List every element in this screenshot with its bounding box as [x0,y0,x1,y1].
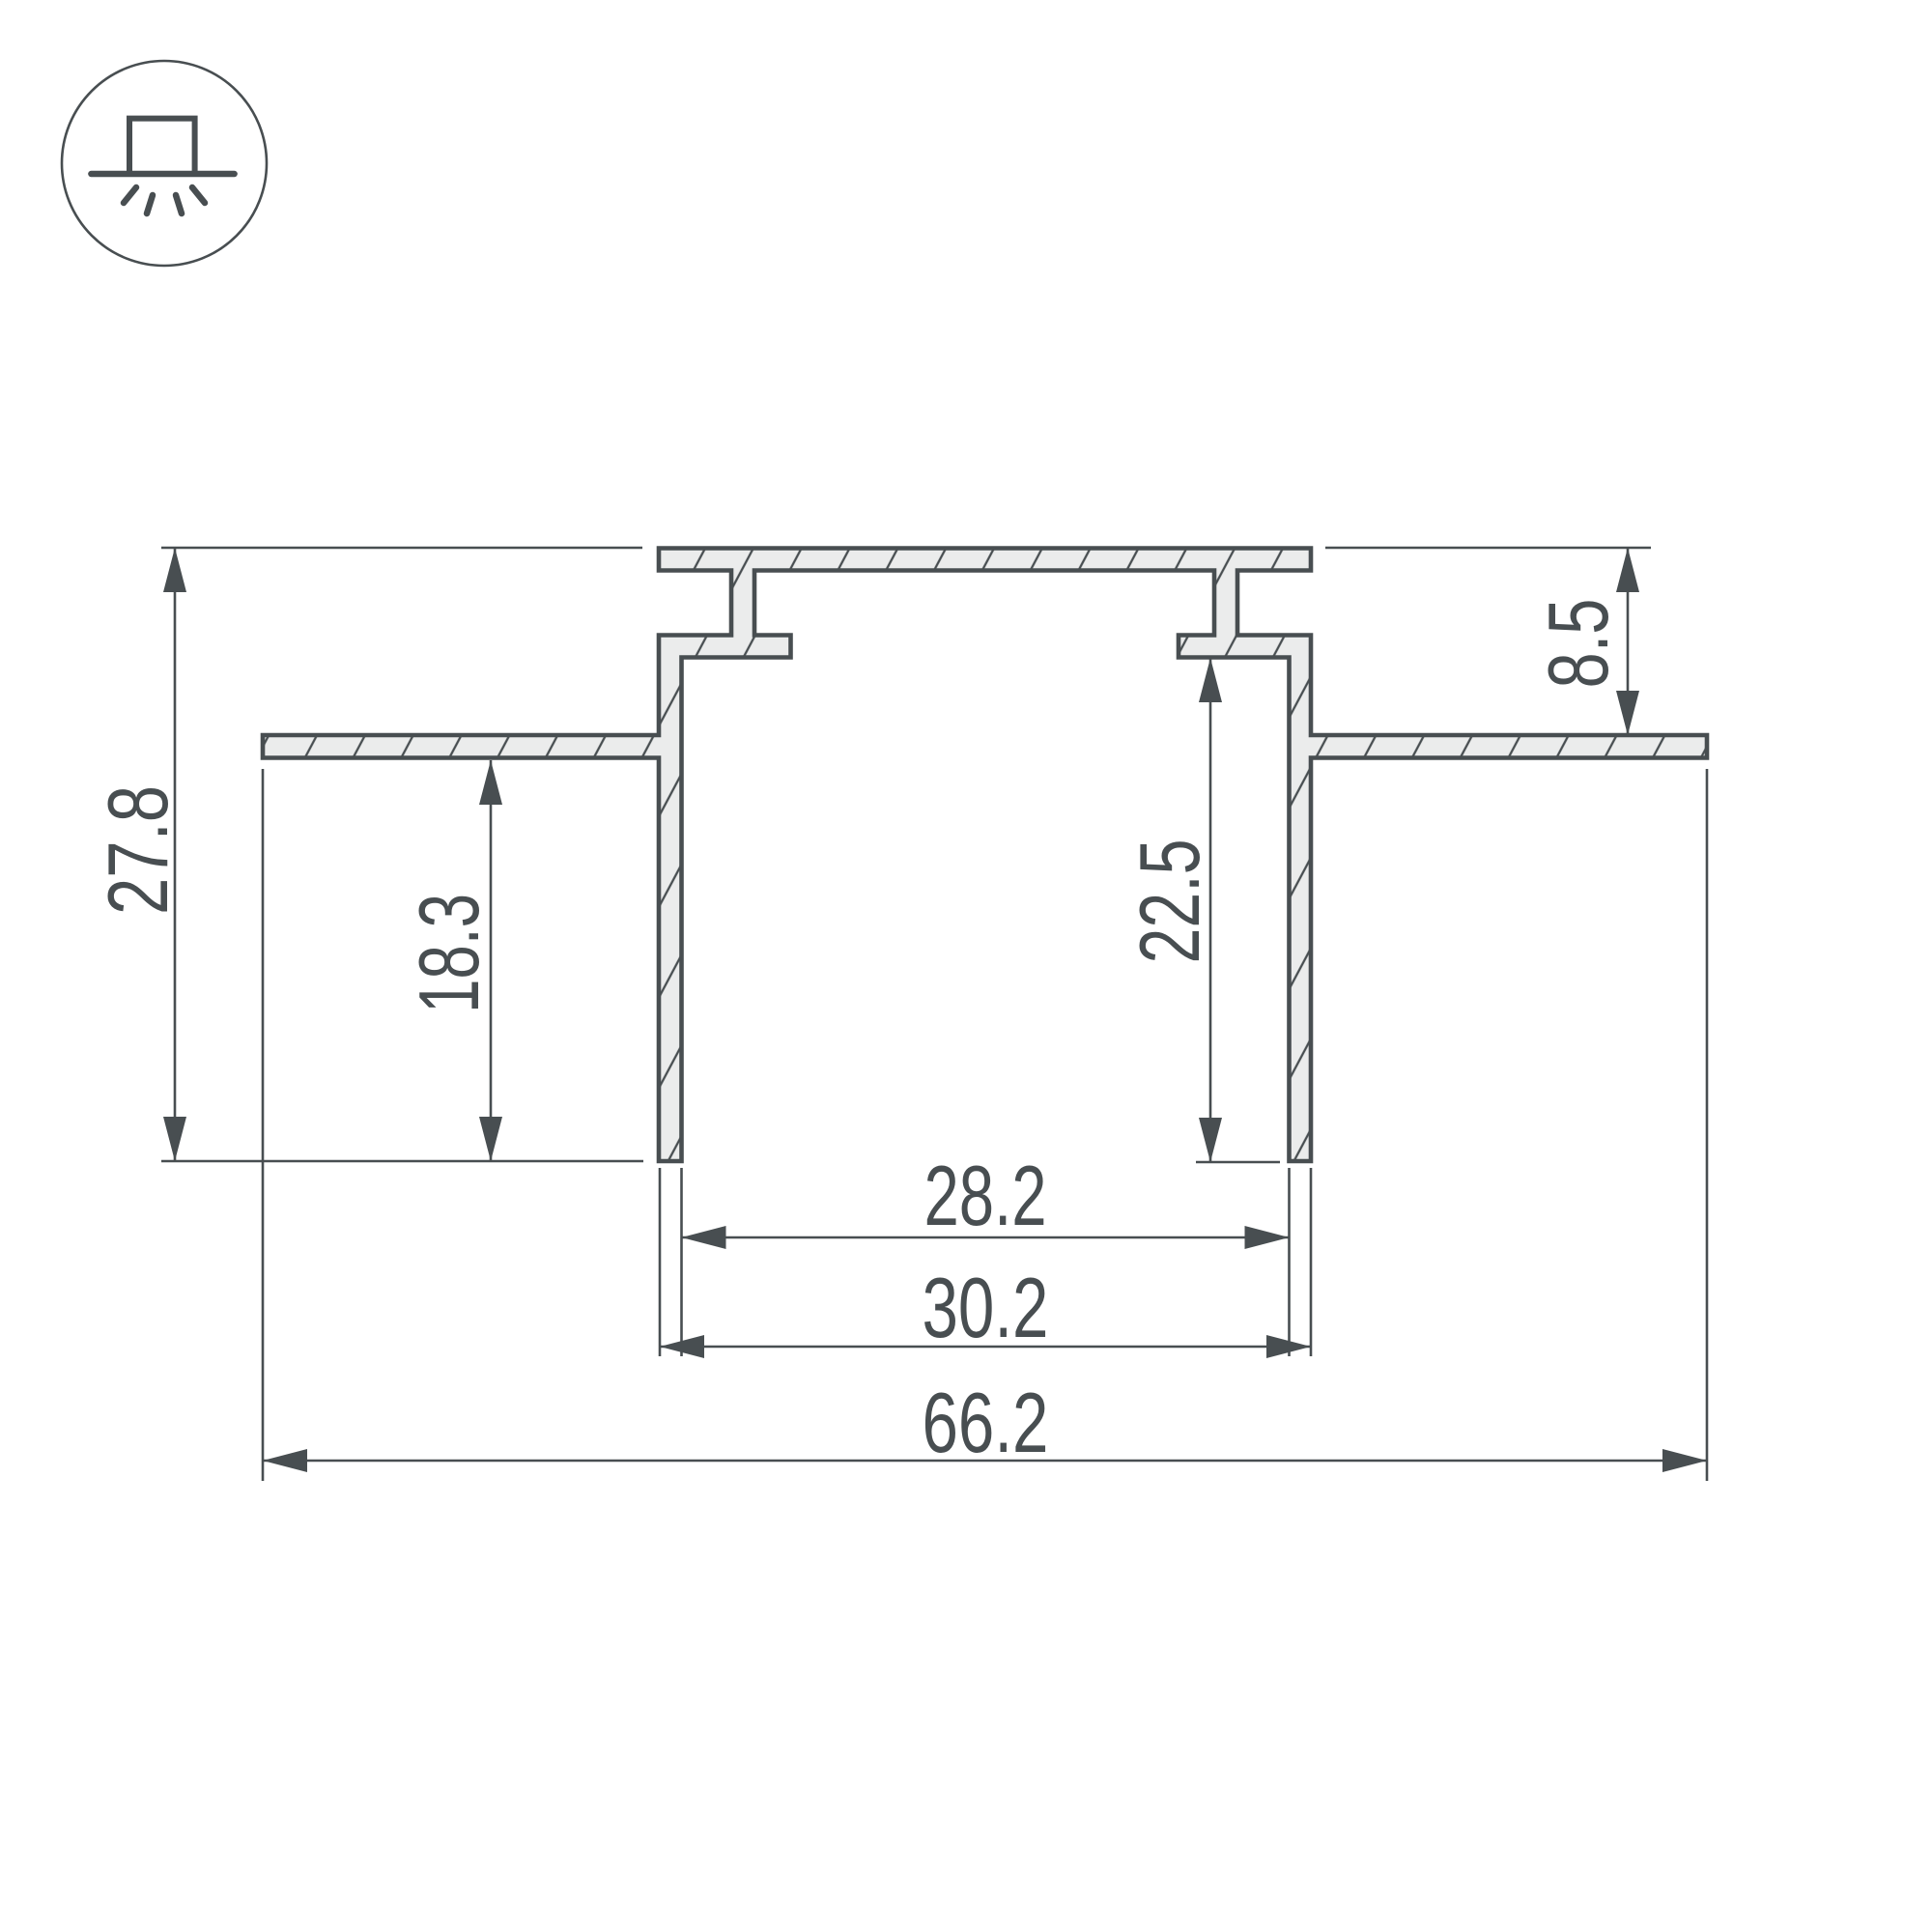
svg-text:22.5: 22.5 [1122,839,1217,964]
svg-text:18.3: 18.3 [401,894,497,1013]
svg-text:27.8: 27.8 [90,785,185,915]
svg-text:66.2: 66.2 [923,1375,1049,1470]
svg-text:8.5: 8.5 [1530,599,1626,689]
svg-text:30.2: 30.2 [923,1260,1049,1355]
svg-text:28.2: 28.2 [924,1148,1047,1243]
